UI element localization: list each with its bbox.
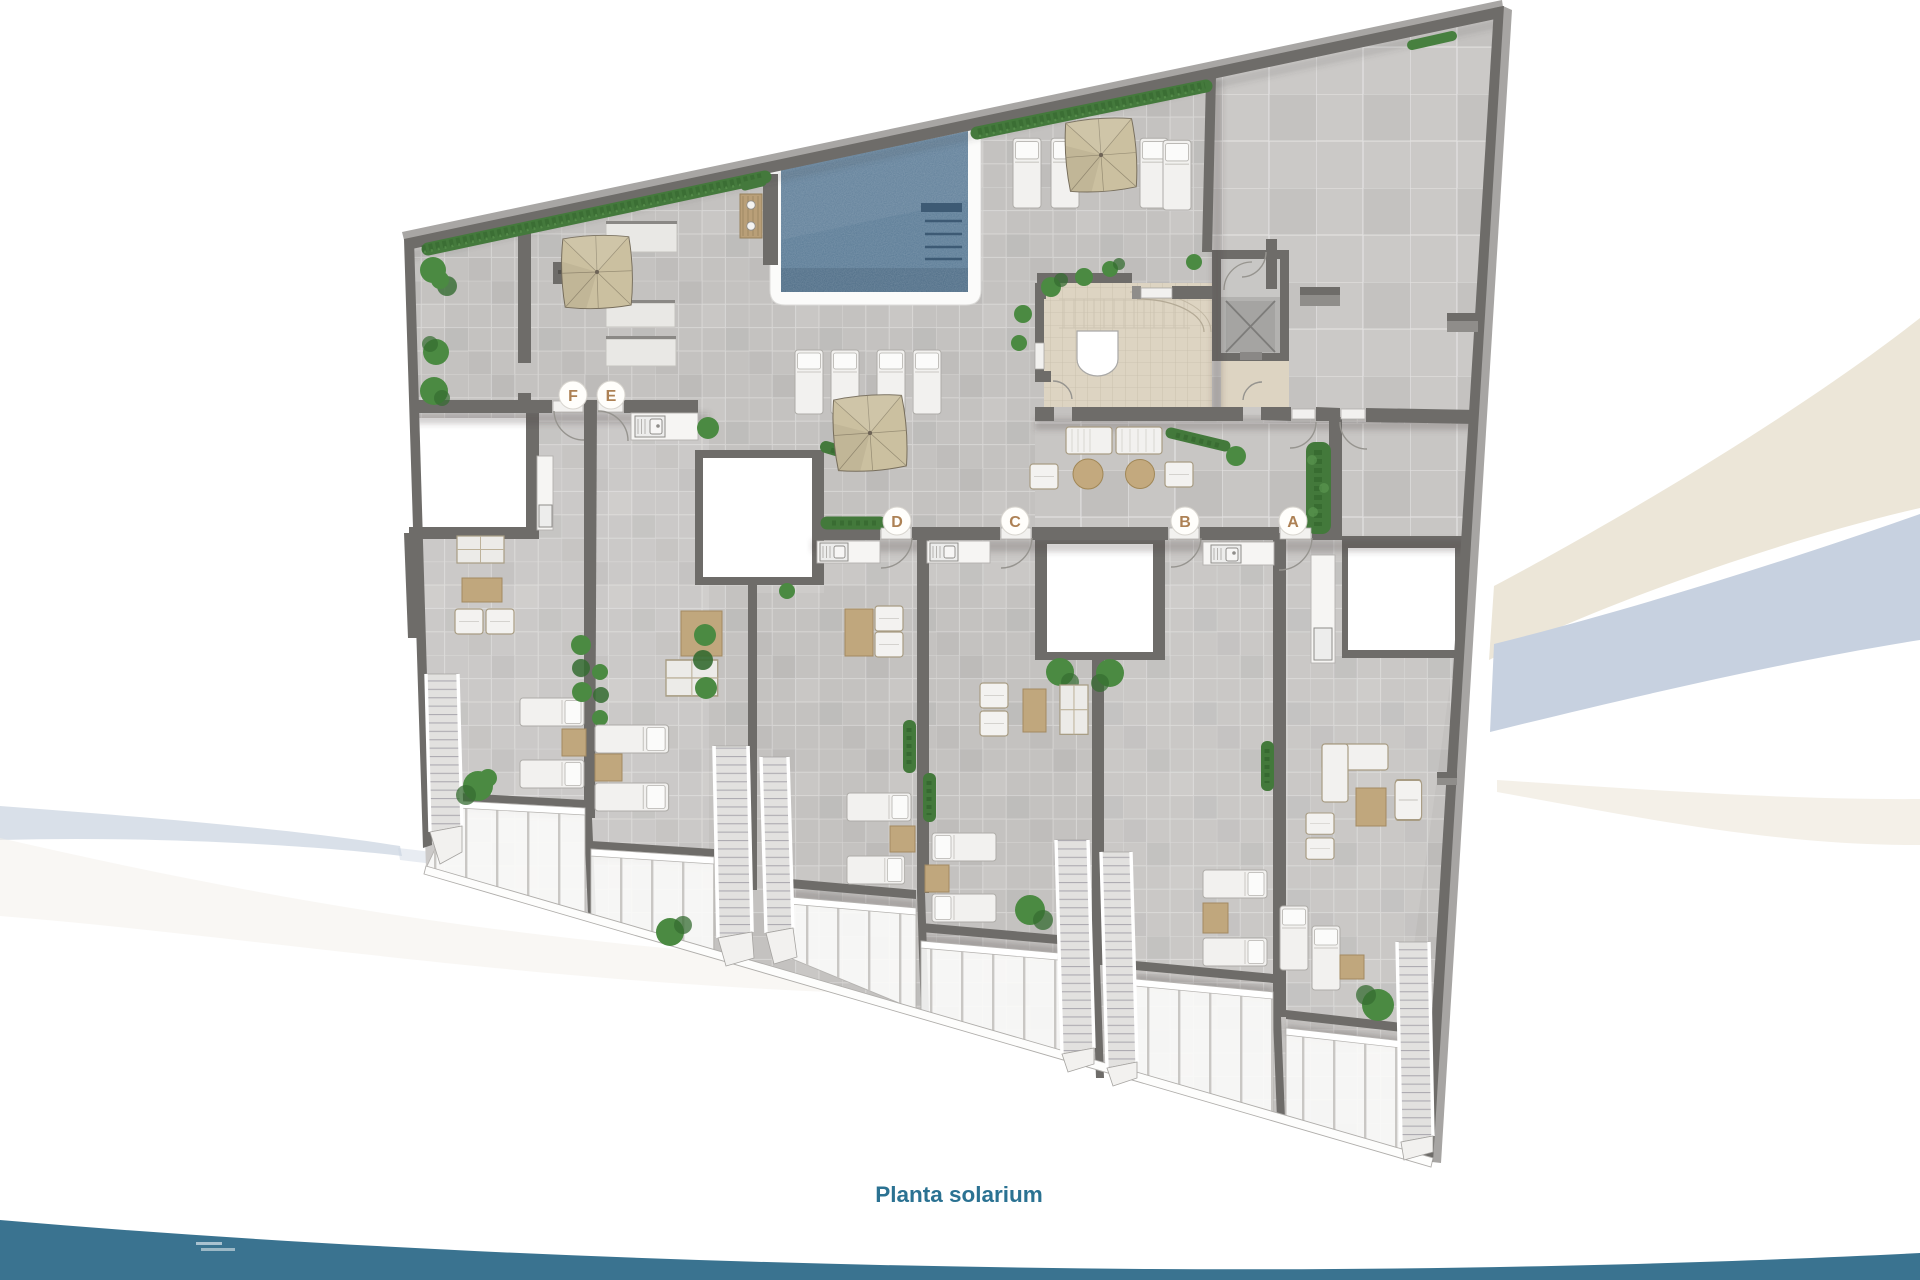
svg-text:B: B <box>1179 514 1191 531</box>
svg-text:C: C <box>1009 514 1021 531</box>
svg-text:D: D <box>891 514 903 531</box>
svg-text:A: A <box>1287 514 1299 531</box>
svg-text:Planta solarium: Planta solarium <box>875 1182 1043 1207</box>
svg-text:E: E <box>606 388 617 405</box>
svg-text:F: F <box>568 388 578 405</box>
